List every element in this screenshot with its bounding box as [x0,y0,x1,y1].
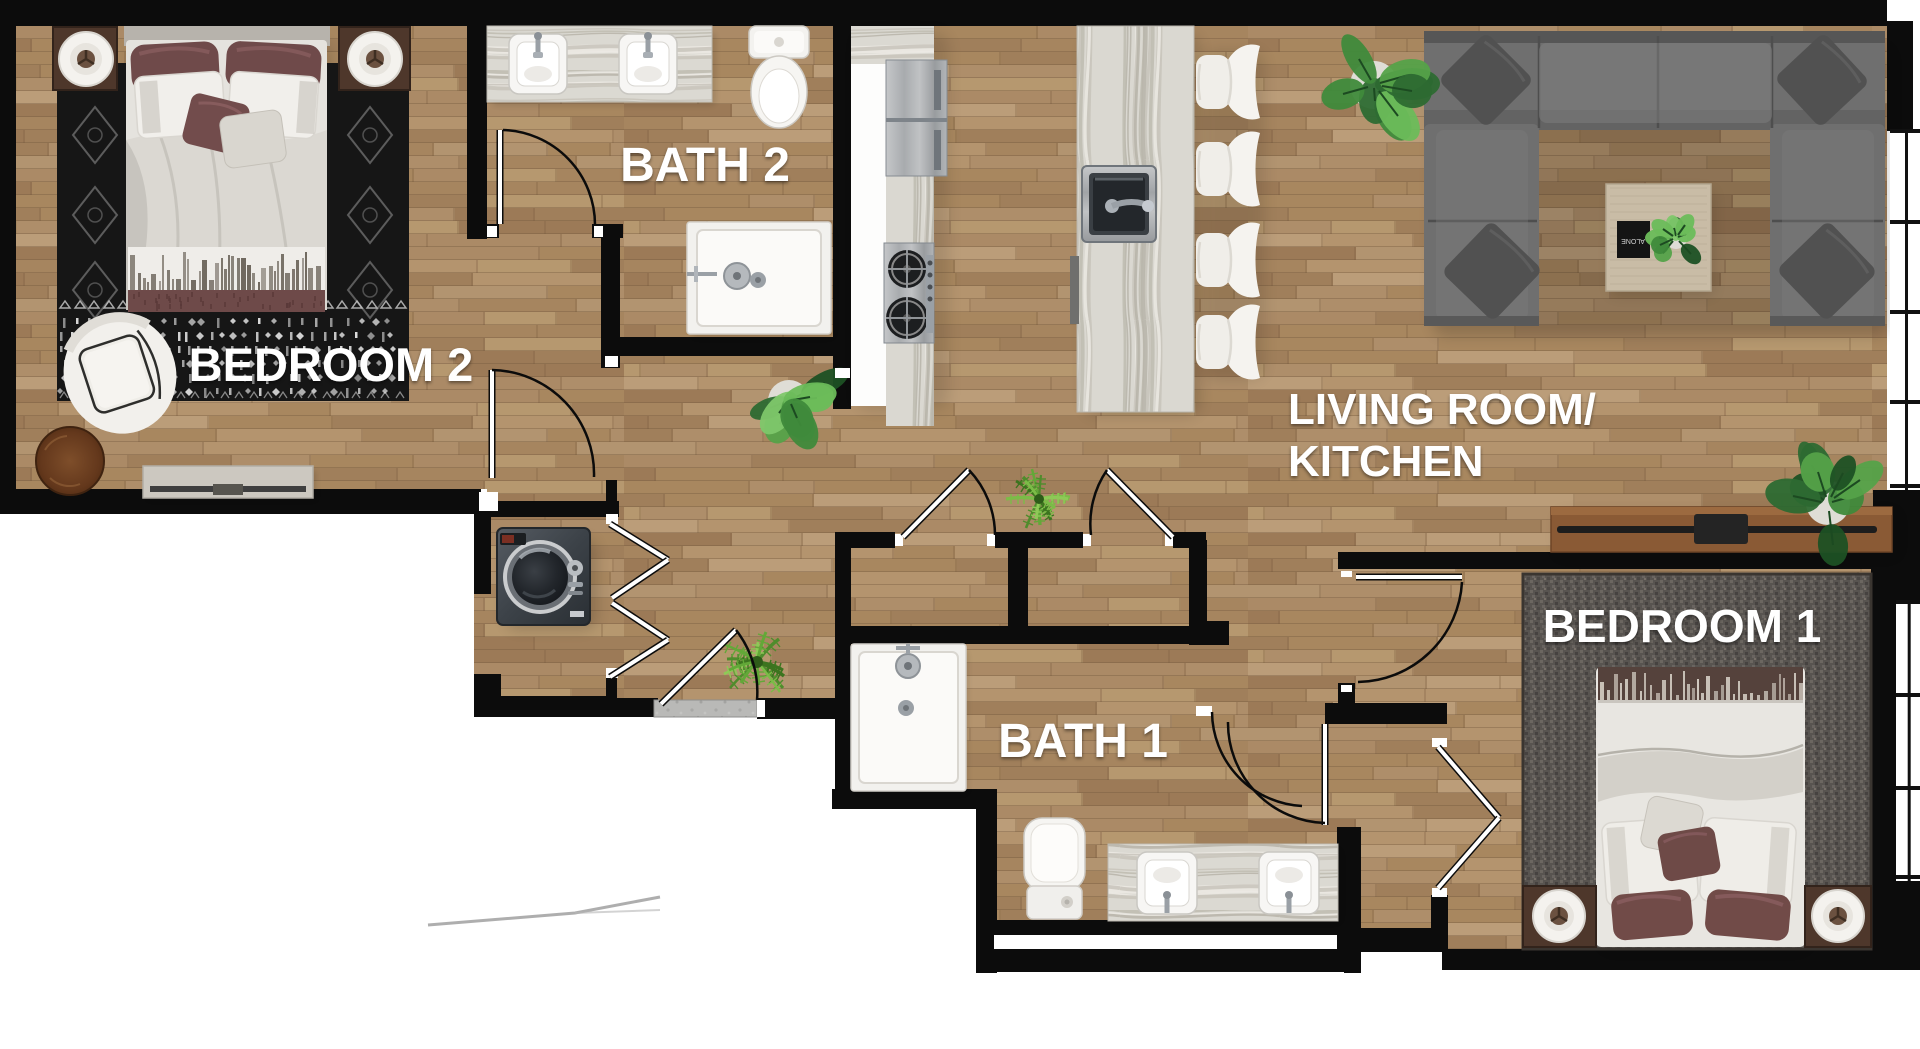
svg-text:BATH 1: BATH 1 [998,715,1168,768]
svg-text:BATH 2: BATH 2 [620,139,790,192]
svg-text:BEDROOM 2: BEDROOM 2 [189,338,474,391]
svg-text:BEDROOM 1: BEDROOM 1 [1543,600,1822,652]
svg-text:LIVING ROOM/: LIVING ROOM/ [1288,385,1596,434]
svg-text:KITCHEN: KITCHEN [1288,437,1484,486]
svg-text:ALONE: ALONE [1621,237,1645,244]
